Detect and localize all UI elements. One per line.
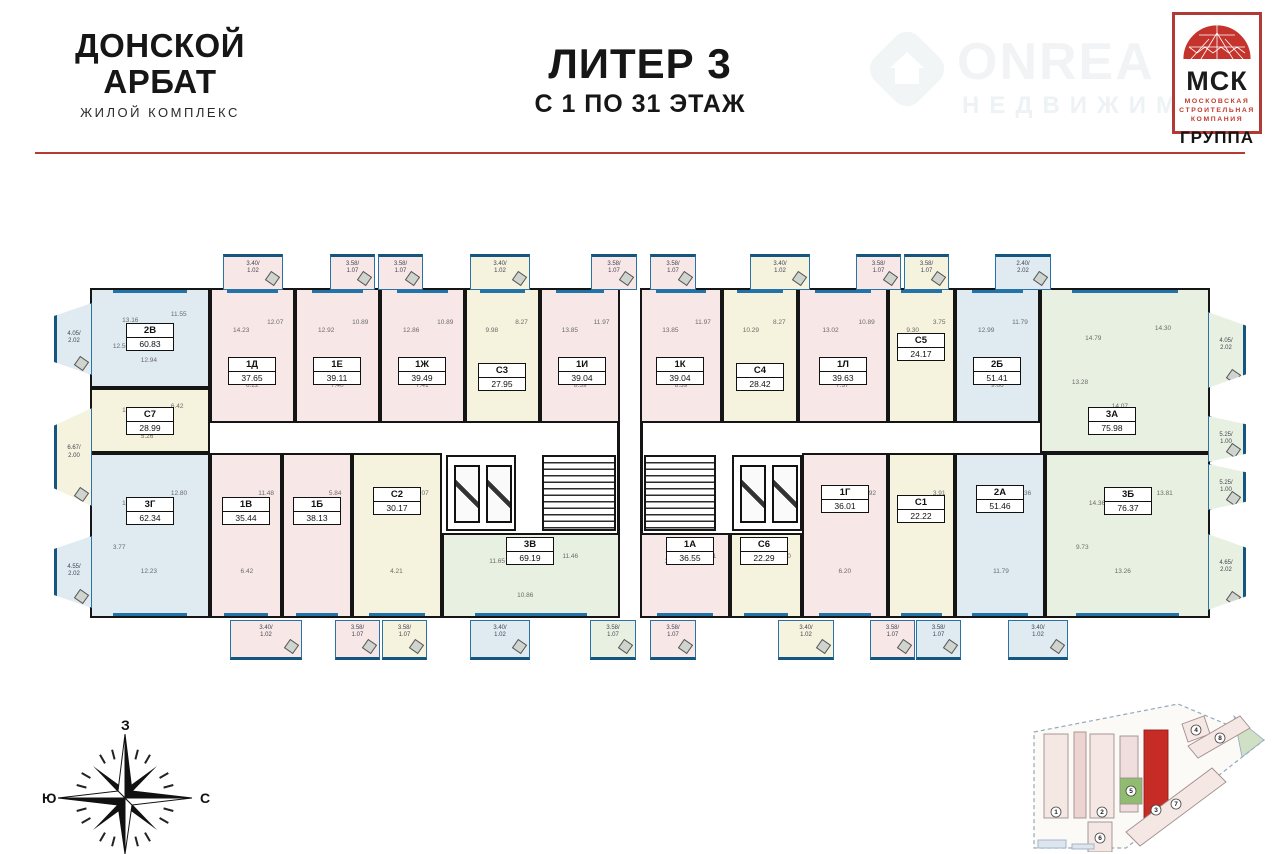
room-area-value: 8.27: [515, 319, 528, 326]
room-area-value: 10.29: [743, 327, 759, 334]
room-area-value: 8.27: [773, 319, 786, 326]
site-building-number-3: 3: [1151, 805, 1161, 815]
apartment-area: 24.17: [898, 348, 944, 360]
room-area-value: 13.28: [1072, 379, 1088, 386]
balcony-bottom: 3.58/1.07: [870, 620, 915, 660]
balcony-area-label: 3.58/1.07: [917, 625, 960, 639]
balcony-area-label: 3.58/1.07: [651, 625, 695, 639]
elevator-shaft: [486, 465, 512, 523]
balcony-table-icon: [512, 639, 527, 654]
balcony-bottom: 3.58/1.07: [650, 620, 696, 660]
balcony-area-label: 3.58/1.07: [336, 625, 379, 639]
balcony-table-icon: [678, 639, 693, 654]
room-area-value: 14.23: [233, 327, 249, 334]
balcony-top: 3.58/1.07: [378, 254, 423, 290]
room-area-value: 11.79: [1012, 319, 1028, 326]
apartment-label-3г: 3Г62.34: [126, 497, 174, 525]
room-area-value: 12.94: [141, 357, 157, 364]
apartment-code: С4: [737, 364, 783, 378]
apartment-1е[interactable]: 12.9210.897.40: [295, 288, 380, 423]
site-plan: 12345678: [1028, 700, 1272, 852]
balcony-table-icon: [1226, 591, 1241, 606]
apartment-с4[interactable]: 10.298.274.10: [722, 288, 798, 423]
balcony-left: 4.05/2.02: [54, 303, 92, 375]
svg-text:3: 3: [1154, 807, 1158, 814]
svg-text:5: 5: [1129, 788, 1133, 795]
apartment-code: 3А: [1089, 408, 1135, 422]
window-strip: [657, 613, 712, 616]
msk-dome-icon: [1175, 19, 1259, 61]
balcony-table-icon: [1226, 369, 1241, 384]
apartment-code: 3В: [507, 538, 553, 552]
apartment-area: 28.99: [127, 422, 173, 434]
balcony-table-icon: [74, 356, 89, 371]
balcony-table-icon: [284, 639, 299, 654]
apartment-code: С1: [898, 496, 944, 510]
apartment-label-с3: С327.95: [478, 363, 526, 391]
apartment-code: С7: [127, 408, 173, 422]
balcony-left: 6.67/2.00: [54, 408, 92, 506]
apartment-area: 39.04: [657, 372, 703, 384]
msk-group-label: ГРУППА: [1175, 128, 1259, 148]
room-area-value: 11.46: [562, 553, 578, 560]
balcony-table-icon: [1050, 639, 1065, 654]
onrealt-house-icon: [862, 24, 952, 124]
apartment-area: 39.04: [559, 372, 605, 384]
balcony-area-label: 3.58/1.07: [591, 625, 635, 639]
apartment-code: 1К: [657, 358, 703, 372]
apartment-label-1в: 1В35.44: [222, 497, 270, 525]
svg-text:1: 1: [1054, 809, 1058, 816]
room-area-value: 10.86: [517, 592, 533, 599]
apartment-area: 51.41: [974, 372, 1020, 384]
apartment-label-1г: 1Г36.01: [821, 485, 869, 513]
apartment-area: 75.98: [1089, 422, 1135, 434]
room-area-value: 6.42: [241, 568, 254, 575]
site-building-1: [1044, 734, 1068, 818]
apartment-area: 76.37: [1105, 502, 1151, 514]
apartment-area: 36.01: [822, 500, 868, 512]
apartment-area: 37.65: [229, 372, 275, 384]
room-area-value: 13.85: [662, 327, 678, 334]
apartment-area: 39.63: [820, 372, 866, 384]
apartment-1в[interactable]: 12.1511.486.42: [210, 453, 282, 618]
balcony-bottom: 3.40/1.02: [470, 620, 530, 660]
window-strip: [656, 290, 706, 293]
room-area-value: 10.89: [858, 319, 874, 326]
apartment-1и[interactable]: 13.8511.978.39: [540, 288, 620, 423]
msk-abbr: МСК: [1175, 68, 1259, 95]
balcony-right: 4.65/2.02: [1208, 534, 1246, 610]
balcony-bottom: 3.40/1.02: [778, 620, 834, 660]
apartment-area: 22.22: [898, 510, 944, 522]
room-area-value: 3.75: [933, 319, 946, 326]
window-strip: [113, 290, 187, 293]
balcony-table-icon: [816, 639, 831, 654]
balcony-bottom: 3.40/1.02: [230, 620, 302, 660]
compass-rose: З Ю С: [40, 718, 220, 854]
apartment-label-1е: 1Е39.11: [313, 357, 361, 385]
balcony-area-label: 4.65/2.02: [1209, 560, 1243, 574]
balcony-table-icon: [74, 487, 89, 502]
window-strip: [819, 613, 871, 616]
apartment-2б[interactable]: 12.9911.799.66: [955, 288, 1040, 423]
elevator-shaft: [454, 465, 480, 523]
room-area-value: 12.86: [403, 327, 419, 334]
balcony-area-label: 3.40/1.02: [1009, 625, 1067, 639]
window-strip: [815, 290, 870, 293]
balcony-area-label: 3.58/1.07: [383, 625, 426, 639]
apartment-label-3в: 3В69.19: [506, 537, 554, 565]
apartment-с1[interactable]: 9.303.91: [888, 453, 955, 618]
apartment-area: 69.19: [507, 552, 553, 564]
apartment-code: 2Б: [974, 358, 1020, 372]
page-title: ЛИТЕР 3 С 1 ПО 31 ЭТАЖ: [420, 40, 860, 119]
compass-west-label: З: [121, 718, 130, 733]
balcony-top: 3.40/1.02: [470, 254, 530, 290]
balcony-bottom: 3.58/1.07: [335, 620, 380, 660]
room-area-value: 12.07: [267, 319, 283, 326]
header-divider: [35, 152, 1245, 154]
apartment-label-1ж: 1Ж39.49: [398, 357, 446, 385]
svg-text:4: 4: [1194, 727, 1198, 734]
complex-subtitle: ЖИЛОЙ КОМПЛЕКС: [60, 105, 260, 120]
balcony-top: 3.58/1.07: [650, 254, 696, 290]
apartment-code: 1Е: [314, 358, 360, 372]
apartment-label-2а: 2А51.46: [976, 485, 1024, 513]
elevator-shaft: [772, 465, 798, 523]
apartment-label-1д: 1Д37.65: [228, 357, 276, 385]
elevator-shaft: [740, 465, 766, 523]
apartment-3б[interactable]: 14.3613.8113.269.73: [1045, 453, 1210, 618]
window-strip: [113, 613, 187, 616]
window-strip: [227, 290, 279, 293]
balcony-area-label: 3.40/1.02: [471, 625, 529, 639]
site-building-number-1: 1: [1051, 807, 1061, 817]
svg-text:8: 8: [1218, 735, 1222, 742]
balcony-top: 3.40/1.02: [223, 254, 283, 290]
site-building-number-8: 8: [1215, 733, 1225, 743]
apartment-2а[interactable]: 12.9911.3611.79: [955, 453, 1045, 618]
room-area-value: 11.65: [489, 558, 505, 565]
room-area-value: 13.26: [1115, 568, 1131, 575]
apartment-area: 38.13: [294, 512, 340, 524]
balcony-top: 3.58/1.07: [591, 254, 637, 290]
balcony-area-label: 3.40/1.02: [779, 625, 833, 639]
window-strip: [1076, 613, 1179, 616]
room-area-value: 14.36: [1089, 500, 1105, 507]
apartment-1л[interactable]: 13.0210.897.37: [798, 288, 888, 423]
window-strip: [475, 613, 586, 616]
site-building-number-4: 4: [1191, 725, 1201, 735]
apartment-1д[interactable]: 14.2312.076.22: [210, 288, 295, 423]
apartment-label-с7: С728.99: [126, 407, 174, 435]
balcony-area-label: 4.55/2.02: [57, 564, 91, 578]
apartment-1б[interactable]: 12.975.84: [282, 453, 352, 618]
window-strip: [312, 290, 364, 293]
balcony-table-icon: [943, 639, 958, 654]
apartment-code: 3Б: [1105, 488, 1151, 502]
balcony-bottom: 3.58/1.07: [382, 620, 427, 660]
apartment-area: 30.17: [374, 502, 420, 514]
apartment-code: 3Г: [127, 498, 173, 512]
room-area-value: 12.23: [141, 568, 157, 575]
floor-plan: 13.1611.5512.9412.562В60.8310.326.425.26…: [50, 248, 1230, 666]
site-building-number-2: 2: [1097, 807, 1107, 817]
complex-name-line2: АРБАТ: [60, 64, 260, 100]
window-strip: [296, 613, 338, 616]
apartment-code: С3: [479, 364, 525, 378]
apartment-code: 1Б: [294, 498, 340, 512]
balcony-table-icon: [409, 639, 424, 654]
balcony-top: 3.58/1.07: [904, 254, 949, 290]
elevator-block: [732, 455, 802, 531]
room-area-value: 12.92: [318, 327, 334, 334]
msk-line3: КОМПАНИЯ: [1175, 115, 1259, 124]
balcony-bottom: 3.58/1.07: [916, 620, 961, 660]
balcony-area-label: 6.67/2.00: [57, 445, 91, 459]
svg-text:6: 6: [1098, 835, 1102, 842]
room-area-value: 9.73: [1076, 544, 1089, 551]
window-strip: [1072, 290, 1178, 293]
apartment-с2[interactable]: 10.7710.074.21: [352, 453, 442, 618]
balcony-bottom: 3.40/1.02: [1008, 620, 1068, 660]
balcony-top: 2.40/2.02: [995, 254, 1051, 290]
room-area-value: 14.79: [1085, 335, 1101, 342]
room-area-value: 12.99: [978, 327, 994, 334]
window-strip: [744, 613, 788, 616]
apartment-label-1а: 1А36.55: [666, 537, 714, 565]
balcony-top: 3.40/1.02: [750, 254, 810, 290]
window-strip: [972, 290, 1024, 293]
window-strip: [480, 290, 525, 293]
apartment-label-с4: С428.42: [736, 363, 784, 391]
balcony-top: 3.58/1.07: [856, 254, 901, 290]
apartment-area: 36.55: [667, 552, 713, 564]
room-area-value: 13.85: [562, 327, 578, 334]
complex-logo: ДОНСКОЙ АРБАТ ЖИЛОЙ КОМПЛЕКС: [60, 28, 260, 120]
balcony-table-icon: [362, 639, 377, 654]
balcony-right: 5.25/1.00: [1208, 416, 1246, 462]
apartment-label-с1: С122.22: [897, 495, 945, 523]
apartment-code: 1А: [667, 538, 713, 552]
apartment-label-3а: 3А75.98: [1088, 407, 1136, 435]
window-strip: [397, 290, 449, 293]
compass-north-label: С: [200, 790, 210, 806]
balcony-left: 4.55/2.02: [54, 536, 92, 608]
balcony-area-label: 3.40/1.02: [231, 625, 301, 639]
apartment-code: 1Л: [820, 358, 866, 372]
apartment-label-с5: С524.17: [897, 333, 945, 361]
apartment-с3[interactable]: 9.988.274.37: [465, 288, 540, 423]
room-area-value: 9.98: [485, 327, 498, 334]
staircase: [542, 455, 616, 531]
svg-text:7: 7: [1174, 801, 1178, 808]
complex-name-line1: ДОНСКОЙ: [60, 28, 260, 64]
staircase: [644, 455, 716, 531]
apartment-label-3б: 3Б76.37: [1104, 487, 1152, 515]
window-strip: [901, 290, 941, 293]
balcony-area-label: 5.25/1.00: [1209, 480, 1243, 494]
apartment-area: 51.46: [977, 500, 1023, 512]
balcony-table-icon: [897, 639, 912, 654]
room-area-value: 11.55: [171, 311, 187, 318]
apartment-area: 39.49: [399, 372, 445, 384]
balcony-table-icon: [618, 639, 633, 654]
room-area-value: 13.02: [822, 327, 838, 334]
apartment-1г[interactable]: 11.7712.926.20: [802, 453, 888, 618]
apartment-area: 35.44: [223, 512, 269, 524]
window-strip: [369, 613, 424, 616]
compass-south-label: Ю: [42, 790, 56, 806]
balcony-right: 4.05/2.02: [1208, 312, 1246, 388]
balcony-area-label: 4.05/2.02: [57, 331, 91, 345]
apartment-label-с2: С230.17: [373, 487, 421, 515]
apartment-label-с6: С622.29: [740, 537, 788, 565]
apartment-label-1л: 1Л39.63: [819, 357, 867, 385]
site-building-strip: [1074, 732, 1086, 818]
apartment-1к[interactable]: 13.8511.978.39: [640, 288, 722, 423]
apartment-label-2в: 2В60.83: [126, 323, 174, 351]
apartment-area: 62.34: [127, 512, 173, 524]
balcony-area-label: 3.58/1.07: [871, 625, 914, 639]
floors-subtitle: С 1 ПО 31 ЭТАЖ: [420, 90, 860, 119]
apartment-code: 2А: [977, 486, 1023, 500]
apartment-code: 1В: [223, 498, 269, 512]
apartment-label-1к: 1К39.04: [656, 357, 704, 385]
apartment-label-2б: 2Б51.41: [973, 357, 1021, 385]
balcony-area-label: 5.25/1.00: [1209, 432, 1243, 446]
room-area-value: 4.21: [390, 568, 403, 575]
apartment-code: 2В: [127, 324, 173, 338]
window-strip: [972, 613, 1027, 616]
apartment-code: 1Г: [822, 486, 868, 500]
svg-text:2: 2: [1100, 809, 1104, 816]
msk-line2: СТРОИТЕЛЬНАЯ: [1175, 106, 1259, 115]
apartment-code: С6: [741, 538, 787, 552]
room-area-value: 13.81: [1156, 490, 1172, 497]
apartment-3г[interactable]: 12.3512.8012.233.77: [90, 453, 210, 618]
room-area-value: 6.20: [838, 568, 851, 575]
balcony-right: 5.25/1.00: [1208, 464, 1246, 510]
balcony-bottom: 3.58/1.07: [590, 620, 636, 660]
apartment-code: 1И: [559, 358, 605, 372]
room-area-value: 10.89: [437, 319, 453, 326]
room-area-value: 10.89: [352, 319, 368, 326]
apartment-code: С2: [374, 488, 420, 502]
site-building-number-6: 6: [1095, 833, 1105, 843]
elevator-block: [446, 455, 516, 531]
balcony-area-label: 4.05/2.02: [1209, 338, 1243, 352]
apartment-area: 39.11: [314, 372, 360, 384]
balcony-top: 3.58/1.07: [330, 254, 375, 290]
room-area-value: 11.97: [594, 319, 610, 326]
balcony-table-icon: [74, 589, 89, 604]
site-building-number-7: 7: [1171, 799, 1181, 809]
apartment-area: 28.42: [737, 378, 783, 390]
apartment-label-1и: 1И39.04: [558, 357, 606, 385]
apartment-area: 22.29: [741, 552, 787, 564]
apartment-label-1б: 1Б38.13: [293, 497, 341, 525]
apartment-code: 1Д: [229, 358, 275, 372]
site-building-2: [1090, 734, 1114, 818]
site-building-number-5: 5: [1126, 786, 1136, 796]
apartment-code: 1Ж: [399, 358, 445, 372]
msk-line1: МОСКОВСКАЯ: [1175, 97, 1259, 106]
apartment-area: 27.95: [479, 378, 525, 390]
msk-logo: МСК МОСКОВСКАЯ СТРОИТЕЛЬНАЯ КОМПАНИЯ ГРУ…: [1172, 12, 1262, 134]
onrealt-watermark: ONREA НЕДВИЖИМ: [862, 24, 1180, 134]
watermark-subtext: НЕДВИЖИМ: [962, 92, 1180, 120]
room-area-value: 3.77: [113, 544, 126, 551]
room-area-value: 11.97: [695, 319, 711, 326]
apartment-code: С5: [898, 334, 944, 348]
liter-title: ЛИТЕР 3: [420, 40, 860, 88]
watermark-text: ONREA: [957, 32, 1155, 92]
window-strip: [737, 290, 783, 293]
room-area-value: 14.30: [1155, 325, 1171, 332]
apartment-area: 60.83: [127, 338, 173, 350]
window-strip: [556, 290, 605, 293]
room-area-value: 11.79: [993, 568, 1009, 575]
apartment-1ж[interactable]: 12.8610.897.41: [380, 288, 465, 423]
window-strip: [224, 613, 268, 616]
window-strip: [901, 613, 941, 616]
